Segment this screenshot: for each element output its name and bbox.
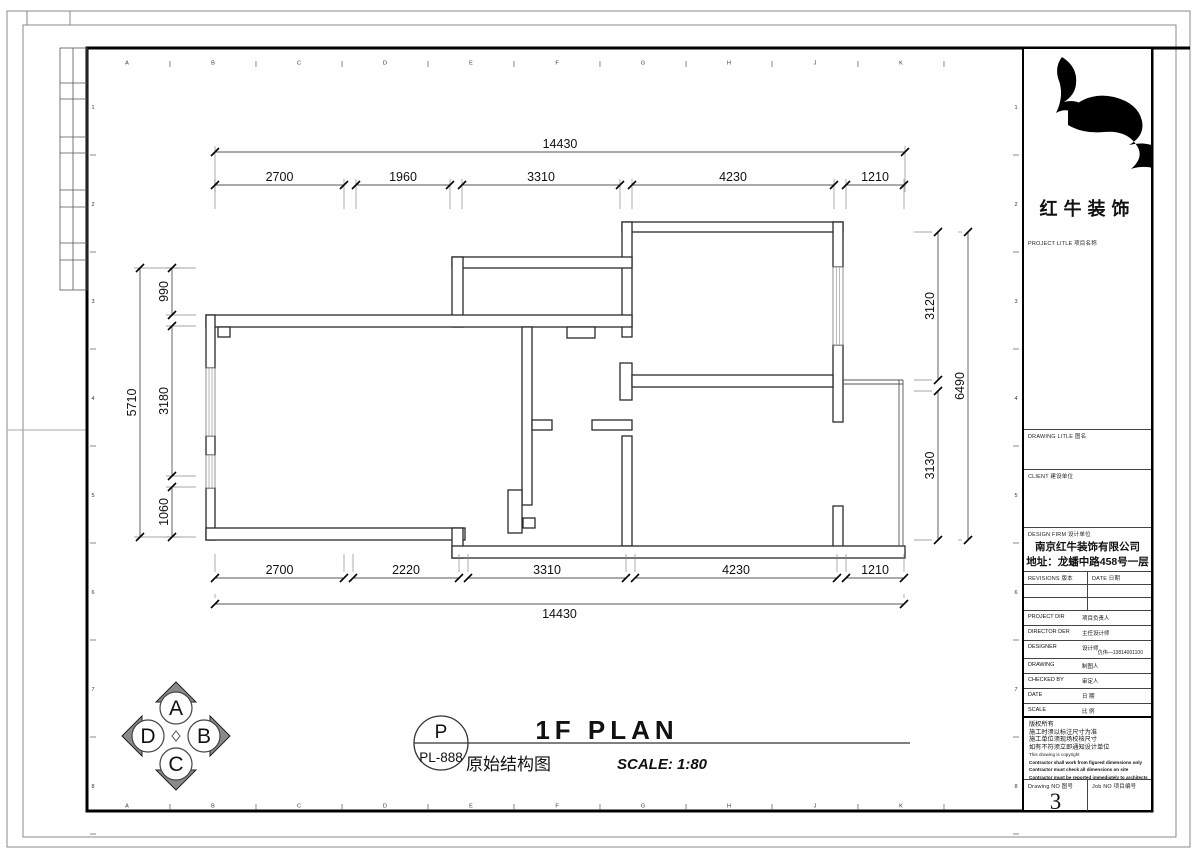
balcony-railing (843, 380, 903, 546)
window (833, 267, 843, 345)
copyright-section: 版权所有施工时须以标注尺寸为准施工单位须现场校核尺寸如有不符须立即通知设计单位T… (1024, 718, 1151, 780)
dimension-label: 3180 (157, 387, 171, 415)
dimension-label: 990 (157, 281, 171, 302)
wall (592, 420, 632, 430)
grid-row-number-right: 1 (1014, 105, 1017, 111)
grid-col-letter-top: A (125, 61, 129, 67)
revisions-row (1024, 585, 1151, 598)
drawing-by-row: DRAWING 制图人 (1024, 659, 1151, 674)
caption-subtitle: 原始结构图 (466, 755, 551, 774)
company-name: 红牛装饰 (1024, 195, 1151, 221)
copyright-line: 施工时须以标注尺寸为准 (1029, 729, 1151, 737)
grid-row-number-right: 4 (1014, 396, 1017, 402)
grid-row-number-right: 2 (1014, 202, 1017, 208)
copyright-line: 版权所有 (1029, 721, 1151, 729)
grid-row-number-right: 6 (1014, 590, 1017, 596)
dimension-label: 14430 (542, 607, 577, 621)
grid-col-letter-bottom: K (899, 804, 903, 810)
checked-by-label: CHECKED BY (1028, 677, 1064, 683)
revisions-row (1024, 598, 1151, 611)
grid-col-letter-top: G (641, 61, 645, 67)
compass: A B C D (122, 682, 230, 790)
designer-phone: 仇伟—13814001100 (1098, 649, 1143, 656)
copyright-line: 如有不符须立即通知设计单位 (1029, 744, 1151, 752)
designer-cn: 设计师 (1082, 644, 1099, 652)
dimension-label: 14430 (543, 137, 578, 151)
grid-row-number-left: 1 (91, 105, 94, 111)
dimension-label: 3310 (533, 563, 561, 577)
caption-scale: SCALE: 1:80 (617, 756, 708, 773)
dimension-label: 5710 (125, 389, 139, 417)
date-label: DATE (1028, 692, 1042, 698)
project-title-section: PROJECT LITLE 项目名称 (1024, 237, 1151, 430)
grid-row-number-left: 5 (91, 493, 94, 499)
wall (206, 436, 215, 455)
wall (567, 327, 595, 338)
scale-cn: 比 例 (1082, 707, 1095, 715)
checked-by-cn: 审定人 (1082, 677, 1099, 685)
wall (532, 420, 552, 430)
drawing-caption: P PL-888 1F PLAN 原始结构图 SCALE: 1:80 (414, 715, 910, 774)
grid-row-number-left: 4 (91, 396, 94, 402)
copyright-line: Contractor must check all dimensions on … (1029, 766, 1151, 774)
project-title-label: PROJECT LITLE 项目名称 (1024, 237, 1151, 247)
grid-col-letter-top: K (899, 61, 903, 67)
wall (833, 506, 843, 552)
design-firm-label: DESIGN FIRM 设计单位 (1024, 528, 1151, 538)
client-section: CLIENT 建设单位 (1024, 470, 1151, 528)
grid-col-letter-bottom: F (555, 804, 559, 810)
wall (218, 327, 230, 337)
grid-row-number-left: 7 (91, 687, 94, 693)
project-dir-cn: 项目负责人 (1082, 614, 1110, 622)
dimension-label: 4230 (719, 170, 747, 184)
compass-letter-left: D (140, 725, 155, 748)
dimension-label: 3130 (923, 452, 937, 480)
grid-row-number-right: 7 (1014, 687, 1017, 693)
dimension-label: 1210 (861, 563, 889, 577)
title-block: 红牛装饰 PROJECT LITLE 项目名称 DRAWING LITLE 图名… (1022, 47, 1153, 812)
project-dir-label: PROJECT DIR (1028, 614, 1065, 620)
drawing-no-value: 3 (1024, 789, 1087, 815)
grid-row-number-right: 3 (1014, 299, 1017, 305)
grid-col-letter-bottom: C (297, 804, 301, 810)
revisions-header: REVISIONS 版本 DATE 日期 (1024, 572, 1151, 585)
grid-row-number-left: 2 (91, 202, 94, 208)
copyright-line: 施工单位须现场校核尺寸 (1029, 736, 1151, 744)
director-cn: 主任设计师 (1082, 629, 1110, 637)
job-no-cell: Job NO 项目编号 (1087, 780, 1151, 811)
compass-letters: A B C D (140, 697, 211, 776)
wall (206, 315, 632, 327)
grid-col-letter-bottom: E (469, 804, 473, 810)
window (206, 455, 215, 488)
copyright-line: Contractor shall work from figured dimen… (1029, 759, 1151, 767)
dimension-label: 6490 (953, 372, 967, 400)
dimension-label: 3310 (527, 170, 555, 184)
grid-col-letter-top: E (469, 61, 473, 67)
compass-letter-top: A (169, 697, 183, 720)
drawing-by-cn: 制图人 (1082, 662, 1099, 670)
scale-row: SCALE 比 例 (1024, 704, 1151, 718)
designer-row: DESIGNER 设计师 仇伟—13814001100 (1024, 641, 1151, 659)
grid-col-letter-top: C (297, 61, 301, 67)
dimension-label: 1960 (389, 170, 417, 184)
grid-col-letter-top: B (211, 61, 215, 67)
wall (620, 363, 632, 400)
number-section: Drawing NO 图号 3 Job NO 项目编号 (1024, 780, 1151, 811)
floor-plan-walls (206, 222, 905, 558)
grid-col-letter-top: J (814, 61, 817, 67)
drawing-by-label: DRAWING (1028, 662, 1054, 668)
grid-row-number-left: 3 (91, 299, 94, 305)
dimension-label: 1060 (157, 498, 171, 526)
date-cn: 日 期 (1082, 692, 1095, 700)
dimension-label: 2220 (392, 563, 420, 577)
wall (206, 315, 215, 368)
grid-row-number-right: 8 (1014, 784, 1017, 790)
wall (522, 327, 532, 505)
caption-title: 1F PLAN (535, 715, 678, 745)
designer-label: DESIGNER (1028, 644, 1057, 650)
compass-center-diamond (172, 731, 180, 741)
grid-row-number-left: 8 (91, 784, 94, 790)
design-firm-address: 地址：龙蟠中路458号一层 (1024, 555, 1151, 570)
wall (622, 222, 843, 232)
grid-col-letter-top: H (727, 61, 731, 67)
wall (523, 518, 535, 528)
signature-strip (60, 48, 87, 290)
grid-col-letter-bottom: D (383, 804, 387, 810)
dimension-label: 1210 (861, 170, 889, 184)
copyright-line: This drawing is copyright (1029, 751, 1151, 759)
grid-col-letter-top: D (383, 61, 387, 67)
drawing-title-label: DRAWING LITLE 图名 (1024, 430, 1151, 440)
revisions-label: REVISIONS 版本 (1024, 572, 1087, 582)
grid-col-letter-bottom: J (814, 804, 817, 810)
grid-col-letter-bottom: A (125, 804, 129, 810)
dimension-label: 4230 (722, 563, 750, 577)
compass-letter-bottom: C (168, 753, 183, 776)
dimension-label: 3120 (923, 292, 937, 320)
design-firm-text: 南京红牛装饰有限公司 地址：龙蟠中路458号一层 (1024, 540, 1151, 570)
wall (833, 345, 843, 422)
grid-col-letter-bottom: G (641, 804, 645, 810)
compass-letter-right: B (197, 725, 211, 748)
caption-tag-letter: P (435, 722, 448, 743)
wall (632, 375, 833, 387)
wall (508, 490, 522, 533)
sheet-canvas: AABBCCDDEEFFGGHHJJKK1122334455667788 144… (0, 0, 1200, 860)
design-firm-section: DESIGN FIRM 设计单位 南京红牛装饰有限公司 地址：龙蟠中路458号一… (1024, 528, 1151, 572)
wall (206, 528, 465, 540)
drawing-title-section: DRAWING LITLE 图名 (1024, 430, 1151, 470)
grid-row-number-right: 5 (1014, 493, 1017, 499)
dimension-label: 2700 (266, 563, 294, 577)
caption-tag-code: PL-888 (419, 750, 463, 765)
director-row: DIRECTOR DER 主任设计师 (1024, 626, 1151, 641)
grid-col-letter-bottom: B (211, 804, 215, 810)
wall (833, 222, 843, 267)
client-label: CLIENT 建设单位 (1024, 470, 1151, 480)
date-row: DATE 日 期 (1024, 689, 1151, 704)
company-logo: 红牛装饰 (1024, 49, 1151, 237)
design-firm-name: 南京红牛装饰有限公司 (1024, 540, 1151, 555)
wall (622, 436, 632, 546)
window (206, 368, 215, 436)
revision-date-label: DATE 日期 (1088, 572, 1151, 582)
drawing-no-cell: Drawing NO 图号 3 (1024, 780, 1087, 811)
project-dir-row: PROJECT DIR 项目负责人 (1024, 611, 1151, 626)
grid-col-letter-top: F (555, 61, 559, 67)
director-label: DIRECTOR DER (1028, 629, 1070, 635)
dimension-label: 2700 (266, 170, 294, 184)
bull-logo-icon (1024, 49, 1151, 199)
wall (452, 257, 632, 268)
grid-row-number-left: 6 (91, 590, 94, 596)
grid-col-letter-bottom: H (727, 804, 731, 810)
checked-by-row: CHECKED BY 审定人 (1024, 674, 1151, 689)
drawing-sheet: AABBCCDDEEFFGGHHJJKK1122334455667788 144… (0, 0, 1200, 860)
scale-label: SCALE (1028, 707, 1046, 713)
job-no-label: Job NO 项目编号 (1088, 780, 1151, 790)
